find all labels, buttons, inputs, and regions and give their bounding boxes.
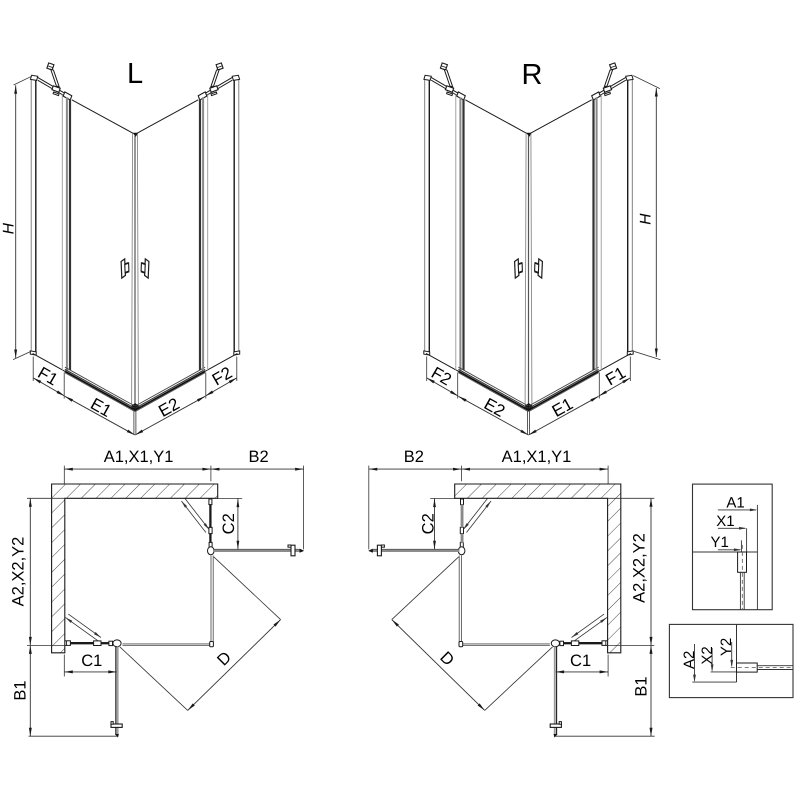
svg-text:R: R (522, 59, 543, 91)
svg-text:X2: X2 (699, 646, 716, 664)
svg-text:A2: A2 (681, 651, 698, 669)
svg-text:H: H (638, 213, 655, 225)
svg-text:Y2: Y2 (718, 638, 735, 656)
svg-text:C1: C1 (81, 652, 102, 670)
svg-text:A1,X1,Y1: A1,X1,Y1 (104, 448, 174, 466)
svg-text:B2: B2 (249, 448, 269, 466)
svg-text:X1: X1 (716, 513, 734, 530)
svg-text:B1: B1 (632, 676, 650, 696)
svg-text:A2,X2,Y2: A2,X2,Y2 (630, 533, 648, 603)
svg-text:A1,X1,Y1: A1,X1,Y1 (502, 448, 572, 466)
svg-text:A2,X2,Y2: A2,X2,Y2 (9, 537, 27, 607)
svg-text:L: L (127, 58, 143, 90)
svg-text:C1: C1 (570, 652, 591, 670)
svg-text:B2: B2 (404, 448, 424, 466)
svg-text:A1: A1 (726, 495, 744, 512)
svg-text:C2: C2 (420, 513, 438, 534)
svg-text:B1: B1 (11, 680, 29, 700)
svg-text:H: H (1, 222, 18, 234)
svg-text:C2: C2 (220, 513, 238, 534)
svg-text:Y1: Y1 (711, 534, 729, 551)
